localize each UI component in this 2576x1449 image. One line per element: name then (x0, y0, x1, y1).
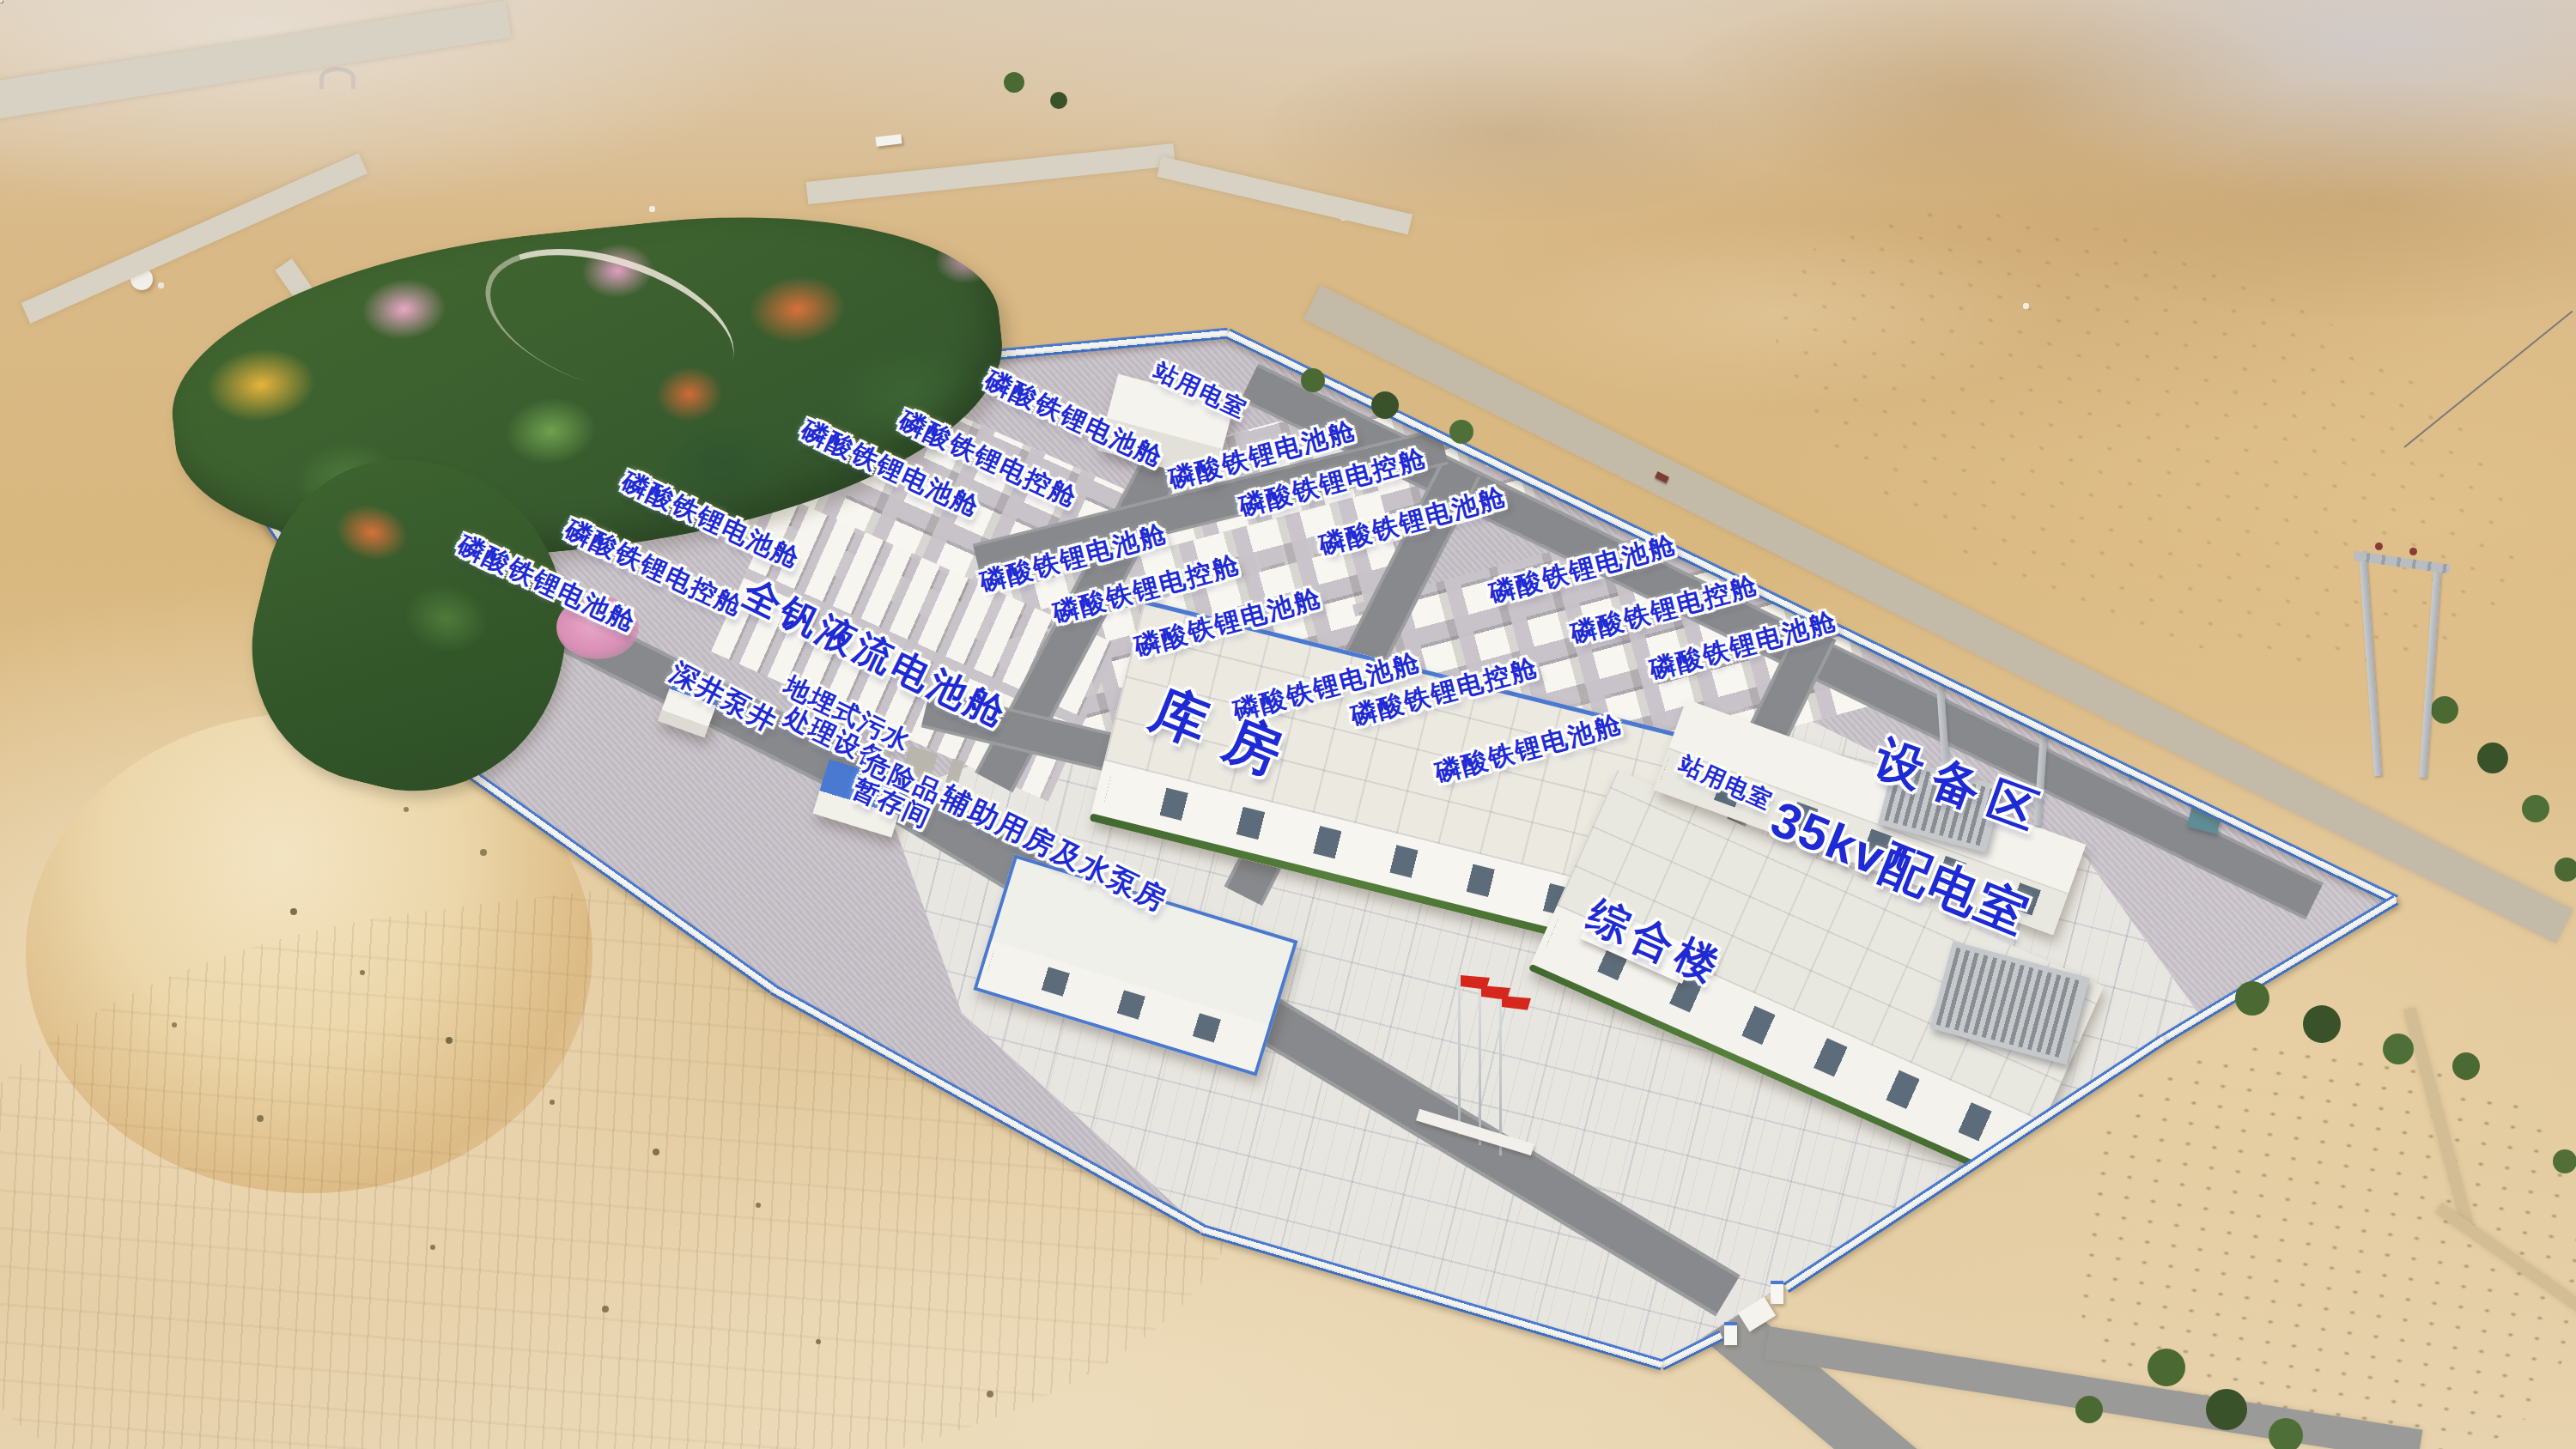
flagpole-2 (1479, 987, 1481, 1145)
aerial-site-rendering: 站用电室 磷酸铁锂电池舱 磷酸铁锂电控舱 磷酸铁锂电池舱 磷酸铁锂电池舱 磷酸铁… (0, 0, 2576, 1449)
scattered-trees (0, 0, 2, 2)
gate-pillar-2 (1724, 1322, 1737, 1345)
gate-pillar-1 (1771, 1281, 1783, 1304)
insulator (2375, 543, 2383, 550)
distant-arch-structure (319, 67, 355, 89)
flagpole-3 (1499, 997, 1502, 1155)
insulator (2409, 548, 2417, 555)
flagpole-1 (1458, 977, 1461, 1135)
